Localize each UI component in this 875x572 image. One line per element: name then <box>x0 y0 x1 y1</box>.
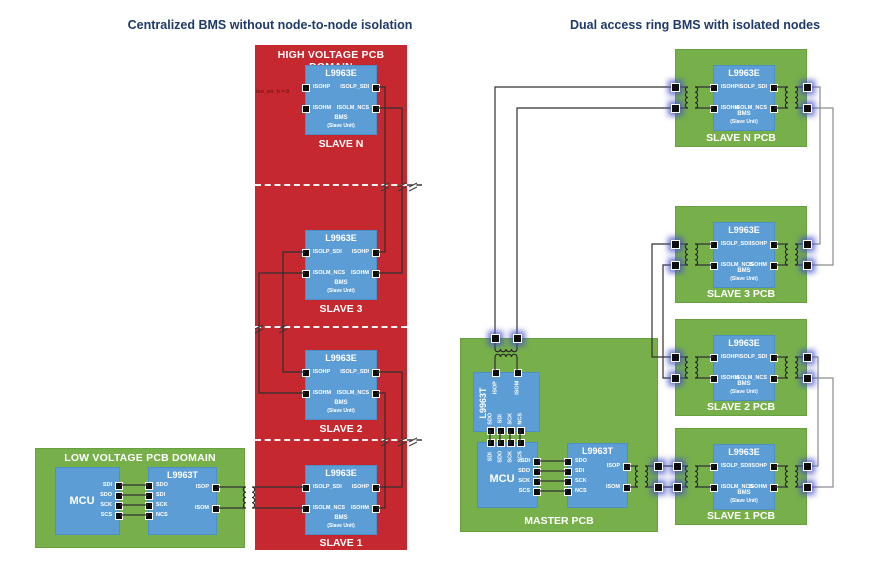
master-pcb-label: MASTER PCB <box>460 515 658 527</box>
connector-node <box>803 483 812 492</box>
chip-title: L9963E <box>714 447 774 457</box>
pin-label: SDI <box>103 483 112 489</box>
pin-square <box>770 354 778 362</box>
slave-1-label: SLAVE 1 <box>305 537 377 549</box>
pin-label: ISOHP <box>750 464 767 470</box>
slave-2-label: SLAVE 2 <box>305 423 377 435</box>
bms-core-label: BMS <box>306 400 376 408</box>
bms-core-sublabel: (Slave Unit) <box>714 276 774 283</box>
chip-title: L9963E <box>306 68 376 78</box>
pin-label: SCK <box>100 503 112 509</box>
pin-label: ISOLP_SDI <box>721 464 750 470</box>
isolation-dashed-line-ext <box>407 439 422 441</box>
pin-label: SDO <box>100 493 112 499</box>
slave-n-pcb-chip: L9963E ISOHP ISOHM ISOLP_SDI ISOLM_NCS B… <box>713 65 775 131</box>
pin-square <box>302 390 310 398</box>
pin-label: ISOHP <box>721 355 738 361</box>
pin-label: ISOLP_SDI <box>340 85 369 91</box>
pin-label: ISOP <box>196 485 209 491</box>
pin-label: ISOHP <box>721 85 738 91</box>
right-diagram-title: Dual access ring BMS with isolated nodes <box>515 18 875 32</box>
pin-square <box>145 502 153 510</box>
pin-label: SDO <box>156 483 168 489</box>
pin-square <box>212 505 220 513</box>
pin-square <box>302 105 310 113</box>
pin-square <box>533 488 541 496</box>
pin-square <box>115 492 123 500</box>
pin-square <box>302 84 310 92</box>
pin-label: ISOLP_SDI <box>313 485 342 491</box>
pin-square <box>115 482 123 490</box>
pin-label: ISOHP <box>352 250 369 256</box>
pin-label: ISOLM_NCS <box>313 271 345 277</box>
pin-label: ISOHM <box>313 391 331 397</box>
pin-label: ISOHP <box>750 242 767 248</box>
bms-core-sublabel: (Slave Unit) <box>306 123 376 130</box>
isolation-dashed-line <box>255 184 407 186</box>
connector-node <box>803 83 812 92</box>
pin-label: ISOHM <box>351 271 369 277</box>
bms-core-sublabel: (Slave Unit) <box>714 498 774 505</box>
pin-label: SDI <box>156 493 165 499</box>
connector-node <box>671 240 680 249</box>
pin-label: ISOLM_NCS <box>337 391 369 397</box>
pin-square <box>564 478 572 486</box>
pin-label: SDI <box>575 469 584 475</box>
pin-square <box>770 463 778 471</box>
connector-node <box>803 104 812 113</box>
chip-title: L9963E <box>714 225 774 235</box>
pin-label: ISOP <box>493 373 499 403</box>
pin-square <box>623 484 631 492</box>
slave-2-chip: L9963E ISOHP ISOHM ISOLP_SDI ISOLM_NCS B… <box>305 350 377 420</box>
pin-label: SCK <box>508 404 514 434</box>
bms-core-label: BMS <box>306 115 376 123</box>
slave-n-pcb-label: SLAVE N PCB <box>675 132 807 144</box>
pin-label: SDI <box>488 442 494 472</box>
pin-label: NCS <box>518 404 524 434</box>
bms-core-sublabel: (Slave Unit) <box>714 119 774 126</box>
connector-node <box>803 261 812 270</box>
pin-square <box>145 482 153 490</box>
pin-label: SDO <box>575 459 587 465</box>
slave-n-label: SLAVE N <box>305 138 377 150</box>
pin-square <box>302 505 310 513</box>
pin-label: ISOLP_SDI <box>738 85 767 91</box>
pin-square <box>533 458 541 466</box>
pin-square <box>302 270 310 278</box>
pin-square <box>710 354 718 362</box>
pin-label: SCS <box>519 489 530 495</box>
pin-square <box>145 492 153 500</box>
isolation-dashed-line <box>255 439 407 441</box>
pin-square <box>710 241 718 249</box>
connector-node <box>654 462 663 471</box>
slave-3-label: SLAVE 3 <box>305 303 377 315</box>
bms-core-sublabel: (Slave Unit) <box>306 408 376 415</box>
pin-label: ISOM <box>515 373 521 403</box>
bms-core-label: BMS <box>714 268 774 276</box>
chip-title: L9963E <box>306 468 376 478</box>
pin-label: SDO <box>498 442 504 472</box>
pin-label: ISOM <box>195 506 209 512</box>
bms-core-label: BMS <box>714 111 774 119</box>
connector-node <box>654 483 663 492</box>
pin-square <box>770 241 778 249</box>
pin-square <box>533 468 541 476</box>
bms-core-sublabel: (Slave Unit) <box>306 288 376 295</box>
connector-node <box>803 240 812 249</box>
iso-enable-note: iso_en_h = 0 <box>256 89 289 95</box>
pin-label: SCS <box>101 513 112 519</box>
master-vertical-l9963t-chip: L9963T ISOP ISOM SDO SDI SCK NCS <box>473 372 540 432</box>
l9963t-chip: L9963T SDO SDI SCK NCS ISOP ISOM <box>148 467 217 535</box>
pin-square <box>623 463 631 471</box>
slave-1-chip: L9963E ISOLP_SDI ISOLM_NCS ISOHP ISOHM B… <box>305 465 377 535</box>
pin-square <box>372 270 380 278</box>
master-mcu-chip: MCU SDI SDO SCK SCS SDI SDO SCK SCS <box>477 442 538 508</box>
slave-1-pcb-label: SLAVE 1 PCB <box>675 510 807 522</box>
pin-label: ISOLM_NCS <box>337 106 369 112</box>
pin-label: ISOLP_SDI <box>313 250 342 256</box>
pin-square <box>372 84 380 92</box>
pin-square <box>710 463 718 471</box>
bms-core-label: BMS <box>306 515 376 523</box>
bms-core-sublabel: (Slave Unit) <box>306 523 376 530</box>
connector-node <box>671 353 680 362</box>
pin-label: ISOP <box>607 464 620 470</box>
pin-label: SCK <box>156 503 168 509</box>
pin-label: SCK <box>508 442 514 472</box>
pin-square <box>302 484 310 492</box>
pin-label: NCS <box>156 513 168 519</box>
pin-square <box>372 484 380 492</box>
pin-square <box>372 369 380 377</box>
slave-n-chip: L9963E ISOHP ISOHM ISOLP_SDI ISOLM_NCS B… <box>305 65 377 135</box>
slave-3-pcb-chip: L9963E ISOLP_SDI ISOLM_NCS ISOHP ISOHM B… <box>713 222 775 288</box>
chip-title: L9963E <box>714 68 774 78</box>
pin-label: NCS <box>575 489 587 495</box>
pin-square <box>145 512 153 520</box>
bms-core-sublabel: (Slave Unit) <box>714 389 774 396</box>
pin-label: ISOHP <box>313 370 330 376</box>
pin-label: ISOLP_SDI <box>721 242 750 248</box>
pin-label: SDO <box>518 469 530 475</box>
pin-square <box>212 484 220 492</box>
connector-node <box>803 353 812 362</box>
pin-square <box>564 468 572 476</box>
connector-node <box>491 334 500 343</box>
pin-label: ISOM <box>606 485 620 491</box>
bms-core-label: BMS <box>306 280 376 288</box>
slave-3-pcb-label: SLAVE 3 PCB <box>675 288 807 300</box>
chip-title: L9963E <box>306 233 376 243</box>
pin-label: ISOHP <box>313 85 330 91</box>
chip-title: L9963E <box>714 338 774 348</box>
chip-title: L9963T <box>568 446 627 456</box>
pin-square <box>115 502 123 510</box>
pin-label: SDI <box>498 404 504 434</box>
pin-square <box>564 458 572 466</box>
connector-node <box>513 334 522 343</box>
pin-label: SDO <box>488 404 494 434</box>
pin-square <box>372 505 380 513</box>
pin-label: ISOLP_SDI <box>738 355 767 361</box>
connector-node <box>803 462 812 471</box>
connector-node <box>671 374 680 383</box>
pin-label: SCK <box>518 479 530 485</box>
connector-node <box>673 462 682 471</box>
pin-square <box>564 488 572 496</box>
master-horizontal-l9963t-chip: L9963T SDO SDI SCK NCS ISOP ISOM <box>567 443 628 508</box>
bms-core-label: BMS <box>714 381 774 389</box>
slave-2-pcb-chip: L9963E ISOHP ISOHM ISOLP_SDI ISOLM_NCS B… <box>713 335 775 401</box>
pin-square <box>302 369 310 377</box>
pin-square <box>302 249 310 257</box>
pin-square <box>710 84 718 92</box>
isolation-dashed-line <box>255 326 407 328</box>
bms-architecture-figure: Centralized BMS without node-to-node iso… <box>0 0 875 572</box>
pin-label: ISOLP_SDI <box>340 370 369 376</box>
chip-title: L9963E <box>306 353 376 363</box>
pin-square <box>372 390 380 398</box>
pin-label: ISOHM <box>351 506 369 512</box>
slave-3-chip: L9963E ISOLP_SDI ISOLM_NCS ISOHP ISOHM B… <box>305 230 377 300</box>
connector-node <box>671 104 680 113</box>
pin-label: ISOLM_NCS <box>313 506 345 512</box>
pin-square <box>770 84 778 92</box>
chip-title: L9963T <box>149 470 216 480</box>
connector-node <box>671 83 680 92</box>
pin-square <box>533 478 541 486</box>
pin-label: ISOHM <box>313 106 331 112</box>
pin-label: ISOHP <box>352 485 369 491</box>
pin-label: SDI <box>521 459 530 465</box>
slave-2-pcb-label: SLAVE 2 PCB <box>675 401 807 413</box>
connector-node <box>803 374 812 383</box>
pin-square <box>115 512 123 520</box>
slave-1-pcb-chip: L9963E ISOLP_SDI ISOLM_NCS ISOHP ISOHM B… <box>713 444 775 510</box>
left-diagram-title: Centralized BMS without node-to-node iso… <box>90 18 450 32</box>
connector-node <box>671 261 680 270</box>
lv-domain-label: LOW VOLTAGE PCB DOMAIN <box>35 452 245 464</box>
pin-label: SCK <box>575 479 587 485</box>
mcu-chip: MCU SDI SDO SCK SCS <box>55 467 120 535</box>
pin-square <box>372 105 380 113</box>
isolation-dashed-line-ext <box>407 184 422 186</box>
bms-core-label: BMS <box>714 490 774 498</box>
pin-square <box>372 249 380 257</box>
connector-node <box>673 483 682 492</box>
